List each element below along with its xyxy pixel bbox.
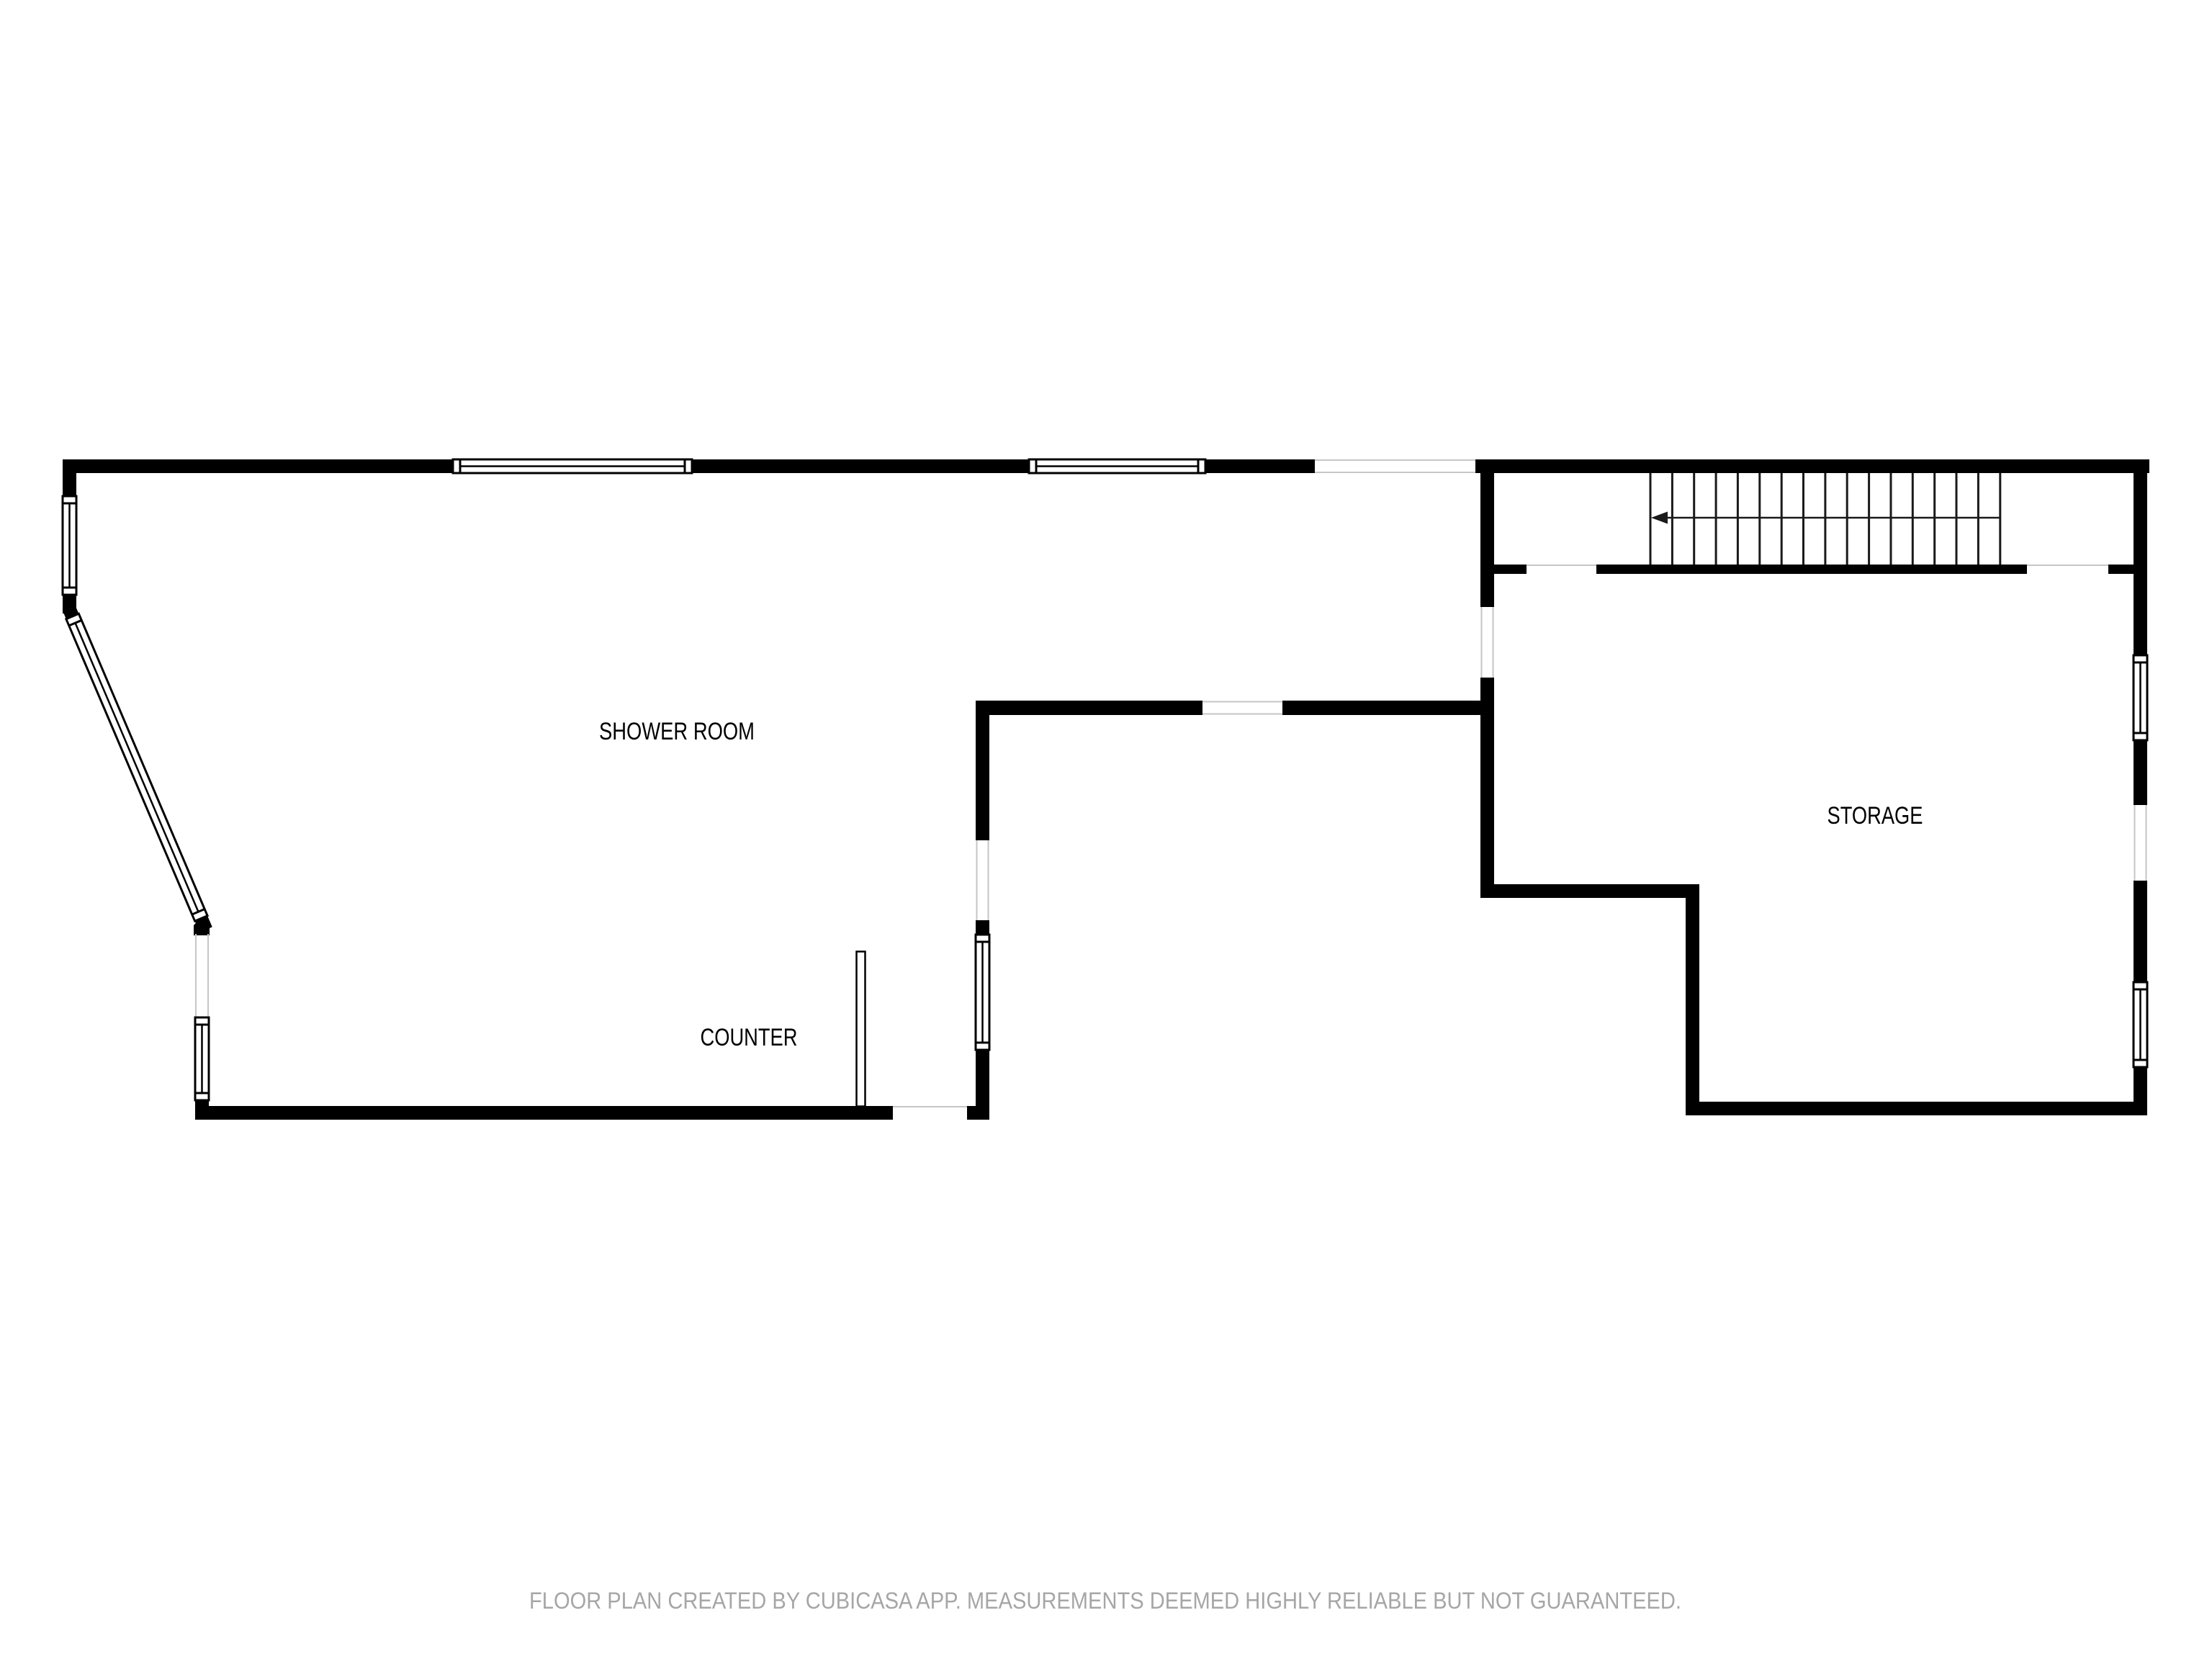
svg-text:FLOOR PLAN CREATED BY CUBICASA: FLOOR PLAN CREATED BY CUBICASA APP. MEAS… xyxy=(529,1588,1681,1614)
svg-text:COUNTER: COUNTER xyxy=(701,1024,798,1051)
svg-text:STORAGE: STORAGE xyxy=(1827,802,1923,829)
svg-text:SHOWER ROOM: SHOWER ROOM xyxy=(599,718,755,745)
